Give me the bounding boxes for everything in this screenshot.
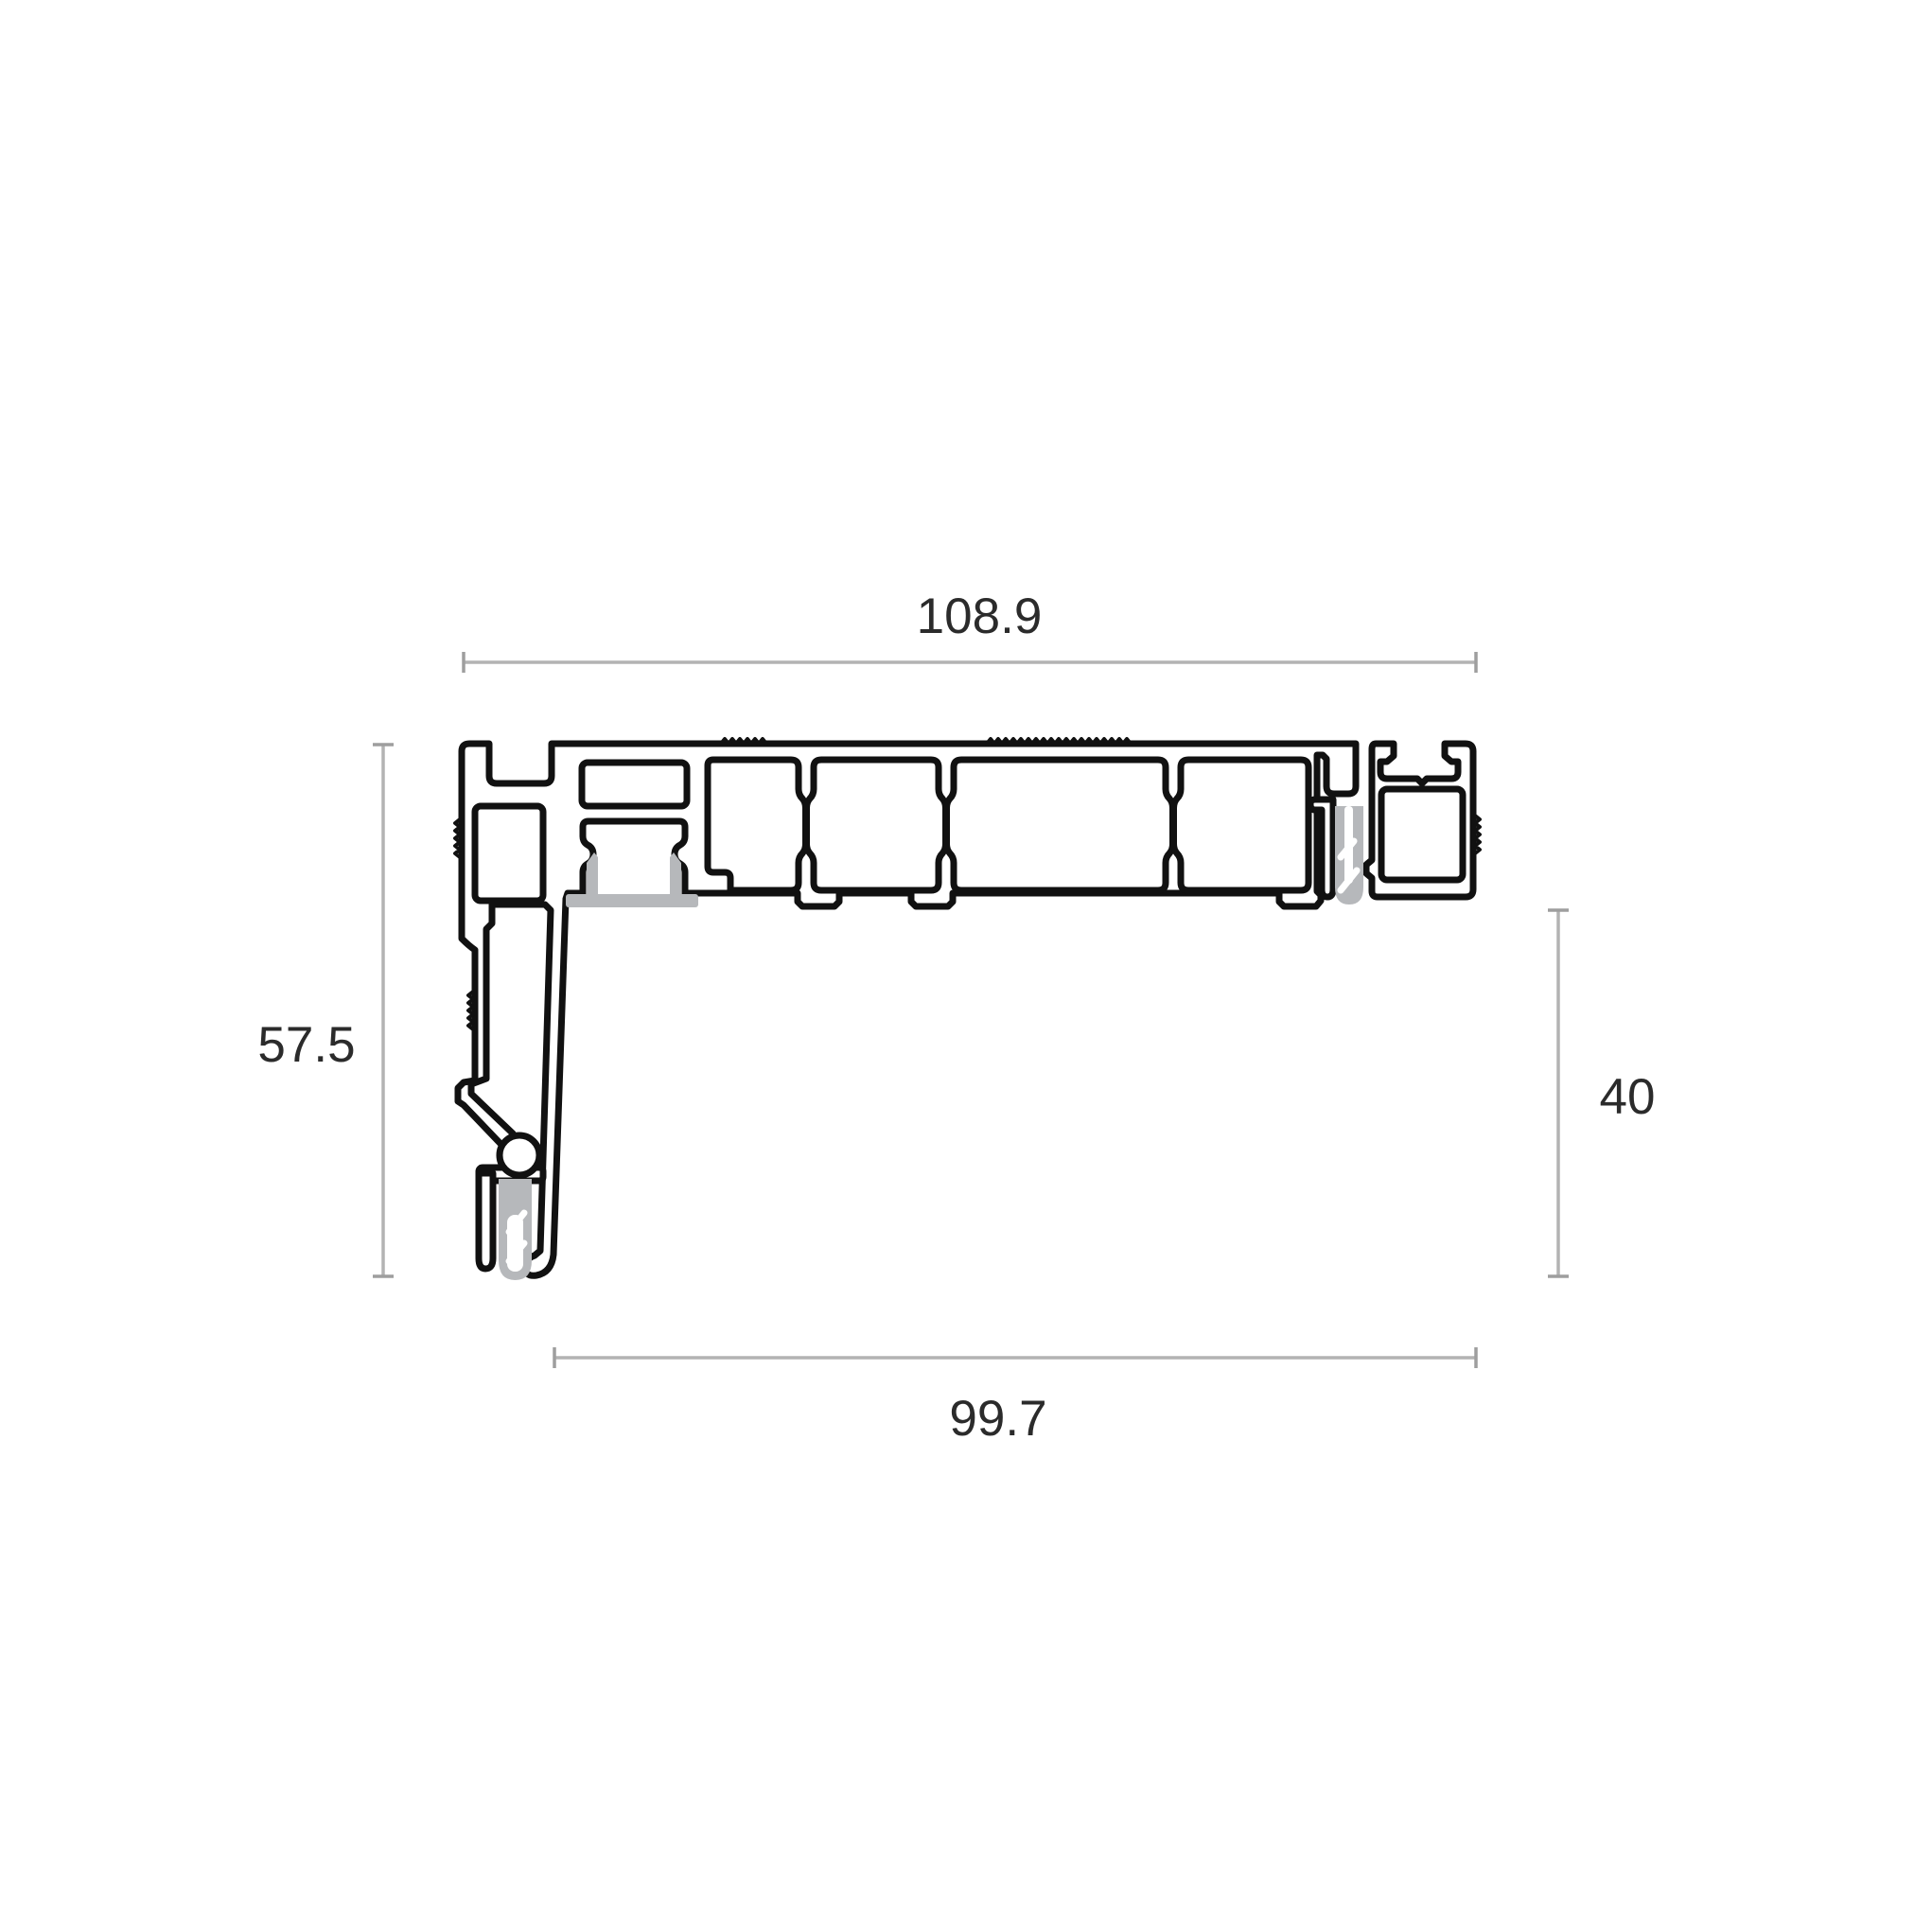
dim-left-label: 57.5 xyxy=(257,1017,355,1073)
chamber-left-box xyxy=(475,806,543,901)
chamber-2 xyxy=(807,760,946,890)
leg-screw-channel-wall-left xyxy=(479,1173,493,1269)
chamber-gasket-slot xyxy=(583,821,685,899)
leg-bulb-ring xyxy=(500,1135,539,1175)
screw-bottom-left xyxy=(499,1179,532,1280)
chamber-right-square xyxy=(1381,789,1463,880)
gasket-base-bar xyxy=(566,894,698,907)
dim-right: 40 xyxy=(1548,910,1655,1276)
dim-top-label: 108.9 xyxy=(917,588,1043,644)
screw-top-right xyxy=(1335,806,1363,905)
profile-cross-section-drawing: 108.9 57.5 40 99.7 xyxy=(0,0,1932,1932)
chamber-3-large xyxy=(947,760,1173,890)
knurl-top-left-zone xyxy=(721,739,766,744)
dim-top: 108.9 xyxy=(464,588,1476,673)
chamber-4 xyxy=(1174,760,1309,890)
technical-drawing-page: 108.9 57.5 40 99.7 xyxy=(0,0,1932,1932)
dim-bottom: 99.7 xyxy=(554,1347,1476,1447)
dim-right-label: 40 xyxy=(1600,1069,1656,1125)
dim-left: 57.5 xyxy=(257,745,394,1276)
chamber-top-small xyxy=(582,763,687,806)
chamber-1 xyxy=(708,760,806,890)
dim-bottom-label: 99.7 xyxy=(949,1391,1046,1447)
profile-body xyxy=(458,744,1473,1275)
